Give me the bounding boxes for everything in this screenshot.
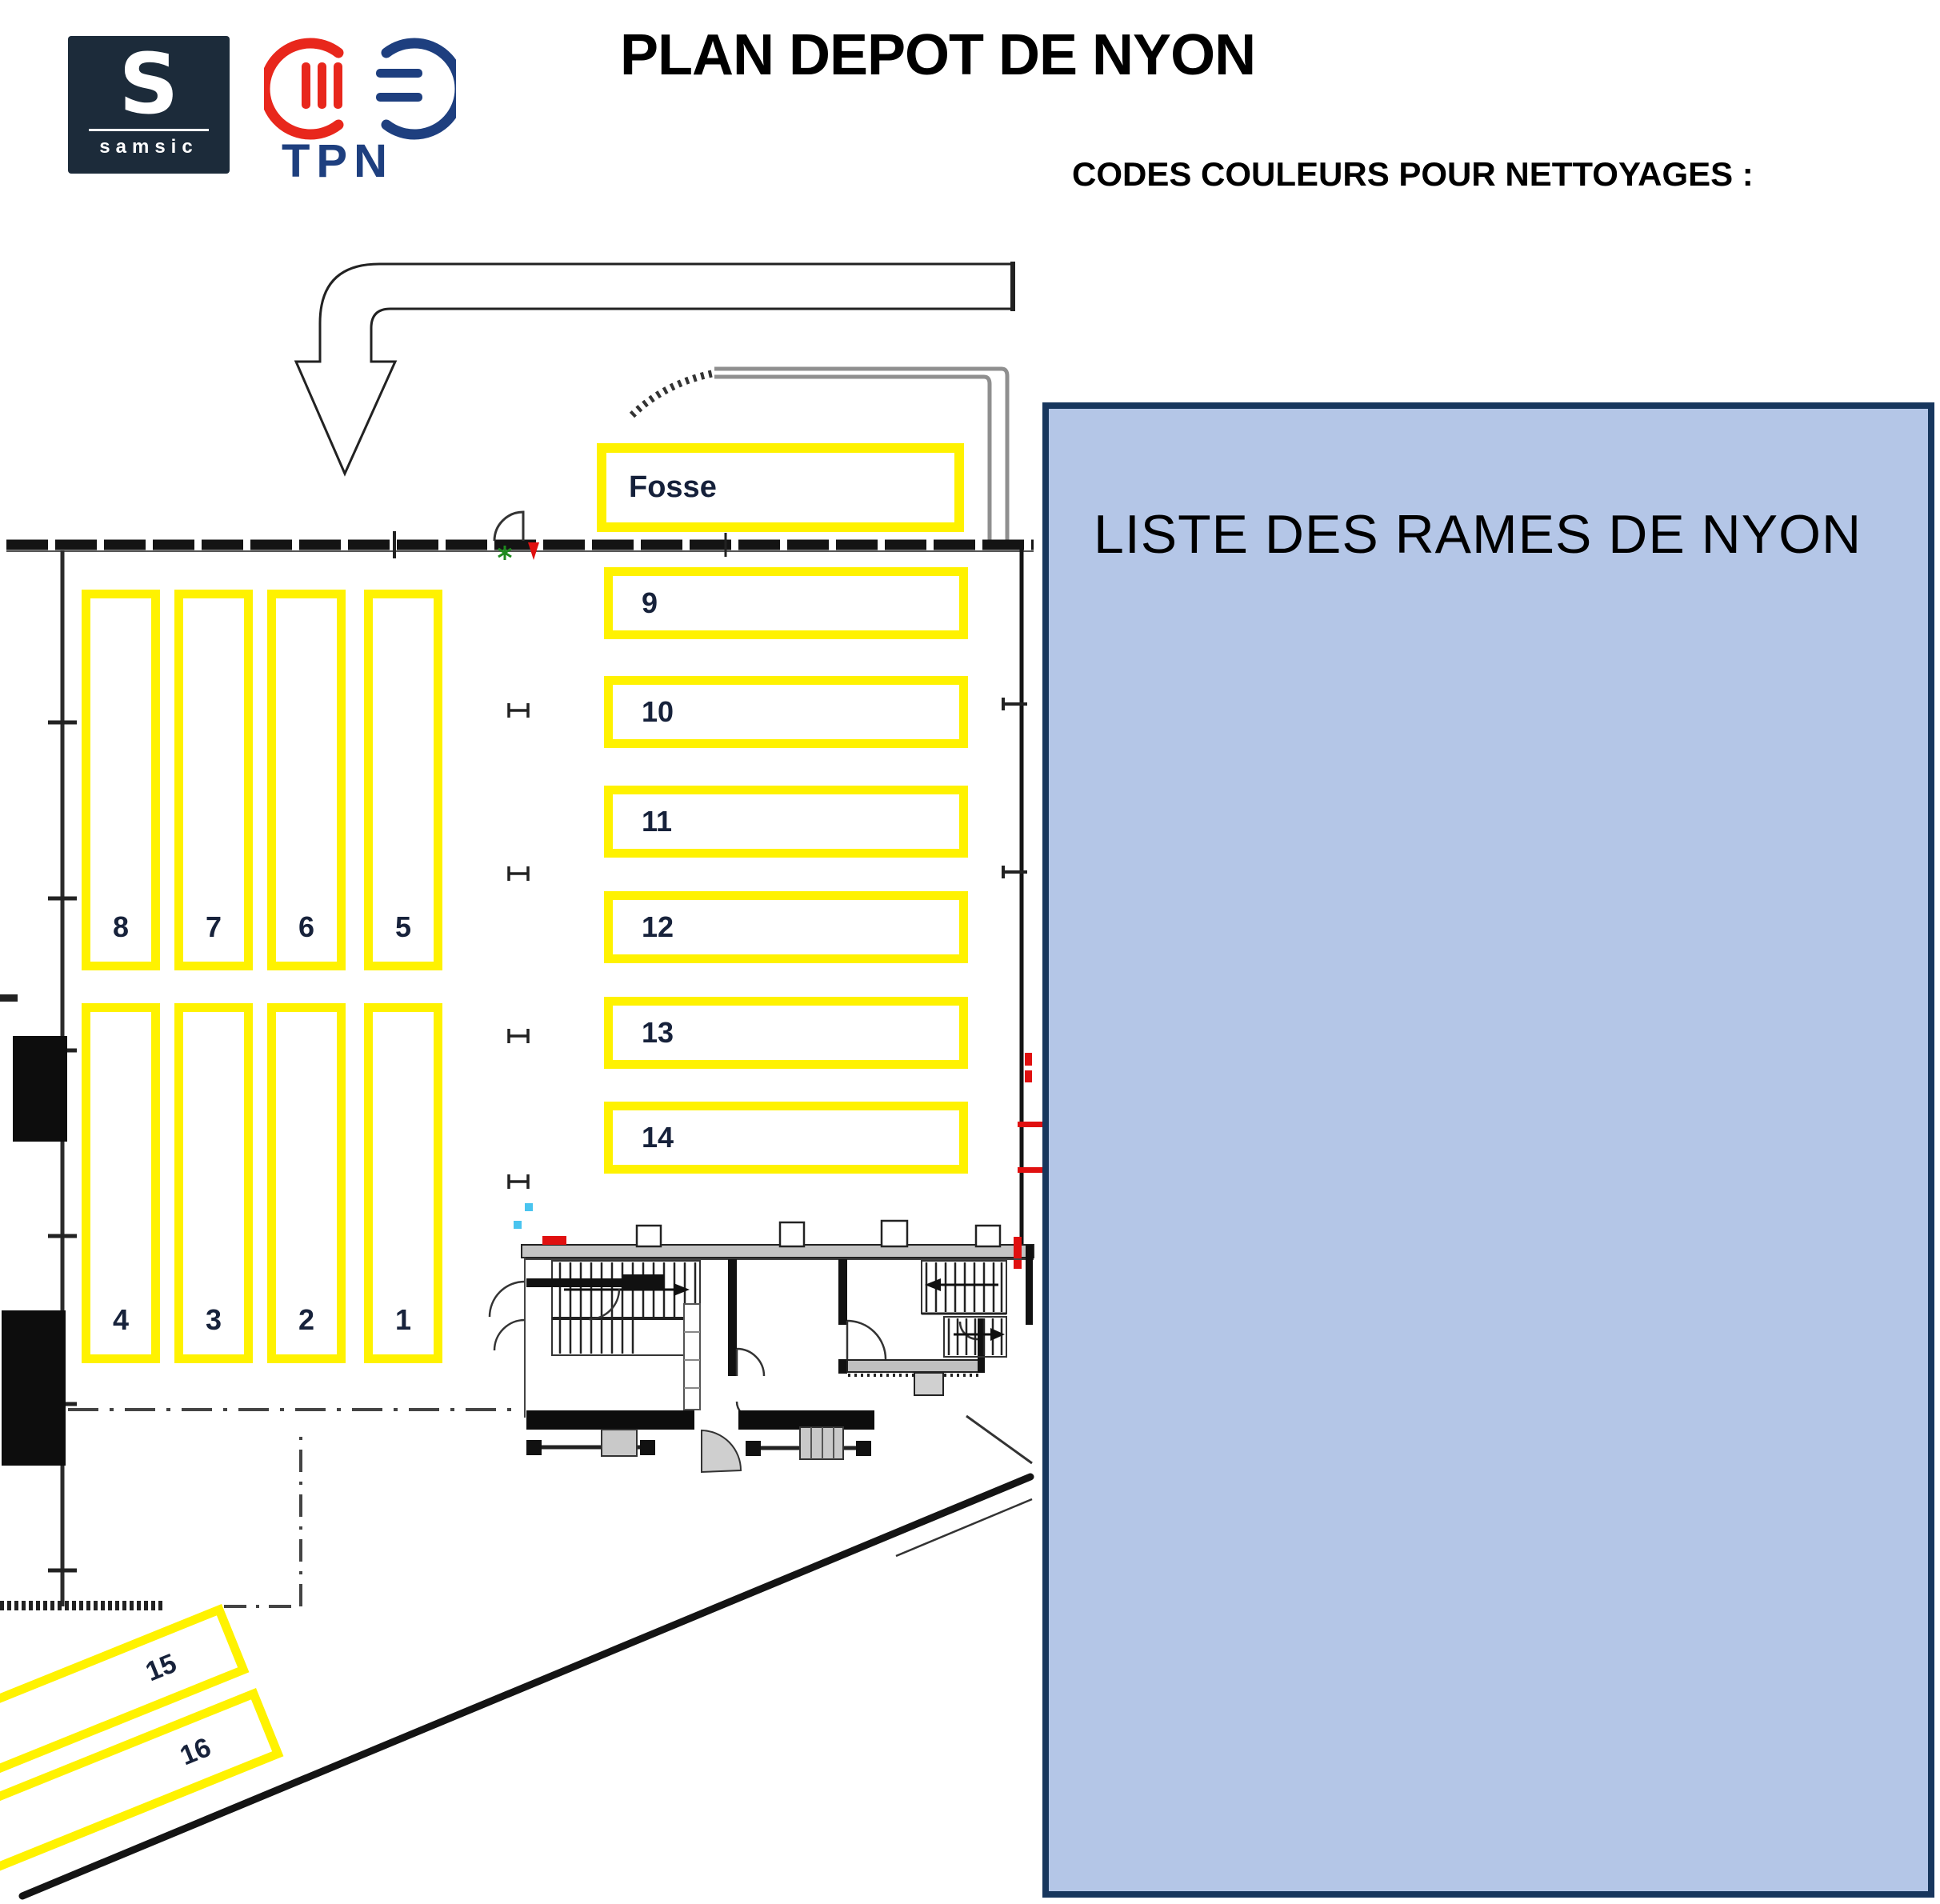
track-label: 13 bbox=[642, 1016, 674, 1050]
door-arc-icon bbox=[589, 1289, 619, 1319]
door-arc-icon bbox=[737, 1349, 764, 1376]
door-arc-icon bbox=[490, 1282, 525, 1350]
stairs-right-icon bbox=[922, 1261, 1006, 1357]
track-label: 9 bbox=[642, 586, 658, 620]
track-label: 12 bbox=[642, 910, 674, 944]
track-label: 15 bbox=[142, 1648, 182, 1688]
door-arc-icon bbox=[494, 512, 523, 541]
track-6: 6 bbox=[267, 590, 346, 970]
track-9: 9 bbox=[604, 567, 968, 639]
hydrant-markers bbox=[509, 703, 528, 1189]
track-label: 14 bbox=[642, 1121, 674, 1154]
cyan-marker-icon bbox=[514, 1221, 522, 1229]
tpn-wordmark: TPN bbox=[282, 134, 394, 188]
rames-list-panel: LISTE DES RAMES DE NYON bbox=[1042, 402, 1934, 1898]
samsic-monogram: S bbox=[119, 41, 179, 127]
track-2: 2 bbox=[267, 1003, 346, 1363]
track-8: 8 bbox=[82, 590, 160, 970]
track-fosse: Fosse bbox=[597, 443, 964, 532]
track-11: 11 bbox=[604, 786, 968, 858]
track-label: 4 bbox=[90, 1303, 151, 1337]
track-7: 7 bbox=[174, 590, 253, 970]
samsic-wordmark: samsic bbox=[99, 136, 198, 158]
track-4: 4 bbox=[82, 1003, 160, 1363]
wall-block-icon bbox=[2, 1310, 66, 1466]
track-label: 10 bbox=[642, 695, 674, 729]
boundary-dashed-lines bbox=[68, 1410, 512, 1606]
wall-block-icon bbox=[13, 1036, 67, 1142]
samsic-logo-rule bbox=[89, 129, 209, 131]
track-label: 5 bbox=[373, 910, 434, 944]
track-12: 12 bbox=[604, 891, 968, 963]
track-label: 8 bbox=[90, 910, 151, 944]
track-label: 6 bbox=[276, 910, 337, 944]
color-codes-heading: CODES COULEURS POUR NETTOYAGES : bbox=[1072, 155, 1754, 194]
samsic-logo: S samsic bbox=[68, 36, 230, 174]
rames-list-title: LISTE DES RAMES DE NYON bbox=[1094, 503, 1928, 566]
track-label: 1 bbox=[373, 1303, 434, 1337]
roof-vents bbox=[637, 1221, 1000, 1246]
track-label: 7 bbox=[183, 910, 244, 944]
page-title: PLAN DEPOT DE NYON bbox=[620, 22, 1255, 88]
track-label: Fosse bbox=[629, 470, 717, 505]
track-label: 3 bbox=[183, 1303, 244, 1337]
track-label: 16 bbox=[176, 1732, 216, 1772]
track-10: 10 bbox=[604, 676, 968, 748]
track-label: 2 bbox=[276, 1303, 337, 1337]
track-13: 13 bbox=[604, 997, 968, 1069]
track-label: 11 bbox=[642, 805, 672, 838]
track-1: 1 bbox=[364, 1003, 442, 1363]
track-3: 3 bbox=[174, 1003, 253, 1363]
door-leaf-icon bbox=[702, 1430, 741, 1472]
depot-building bbox=[490, 1221, 1034, 1472]
depot-plan-page: S samsic TPN PLAN DEPOT DE NYON CODES CO… bbox=[0, 0, 1940, 1904]
track-14: 14 bbox=[604, 1102, 968, 1174]
door-arc-icon bbox=[847, 1321, 886, 1359]
cyan-marker-icon bbox=[525, 1203, 533, 1211]
track-5: 5 bbox=[364, 590, 442, 970]
